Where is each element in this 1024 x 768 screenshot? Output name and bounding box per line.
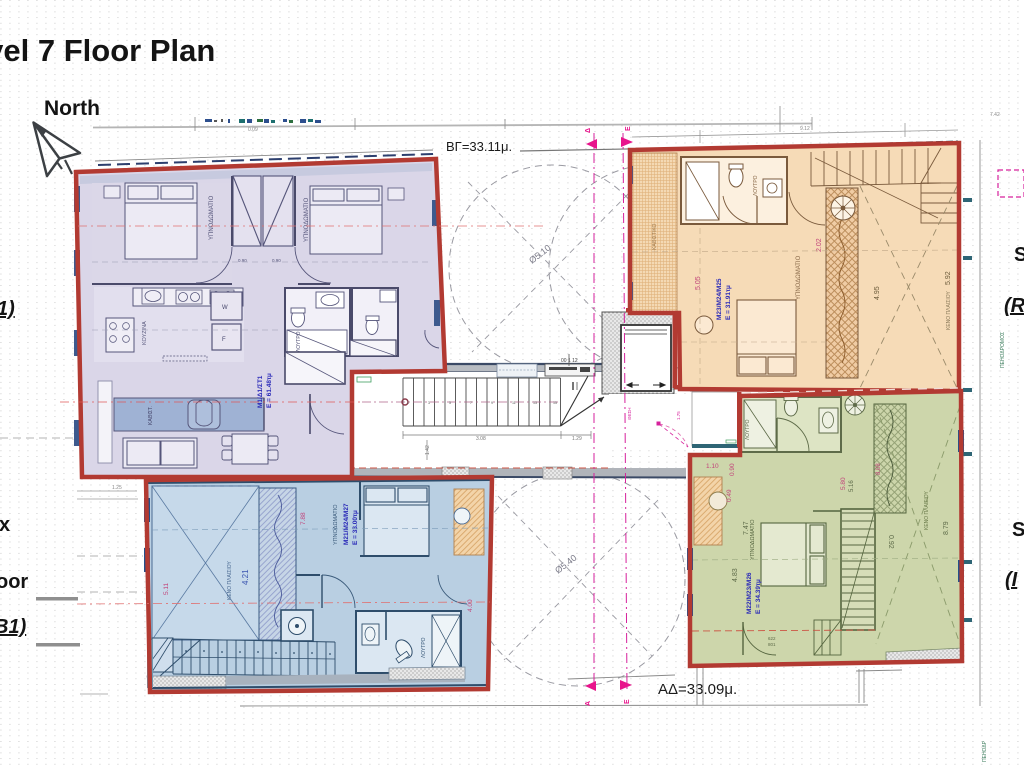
svg-text:8.79: 8.79: [943, 521, 950, 535]
svg-text:4.00: 4.00: [467, 599, 474, 612]
svg-text:ΥΠΝΟΔΩΜΑΤΙΟ: ΥΠΝΟΔΩΜΑΤΙΟ: [750, 519, 756, 560]
svg-text:S: S: [1014, 244, 1024, 266]
svg-text:ΚΕΝΟ ΠΛΑΙΣΙΟΥ: ΚΕΝΟ ΠΛΑΙΣΙΟΥ: [946, 291, 952, 330]
svg-text:W: W: [222, 305, 228, 311]
svg-text:ΚΕΝΟ ΠΛΑΙΣΙΟΥ: ΚΕΝΟ ΠΛΑΙΣΙΟΥ: [227, 561, 233, 600]
svg-text:Level 7 Floor Plan: Level 7 Floor Plan: [0, 33, 215, 68]
svg-text:5.11: 5.11: [163, 582, 170, 595]
svg-text:ΥΠΝΟΔΩΜΑΤΙΟ: ΥΠΝΟΔΩΜΑΤΙΟ: [796, 255, 802, 300]
svg-text:(I: (I: [1005, 569, 1018, 591]
svg-text:5.16: 5.16: [849, 480, 855, 492]
svg-text:8.08: 8.08: [876, 463, 882, 475]
svg-text:ΚΟΥΖΙΝΑ: ΚΟΥΖΙΝΑ: [142, 321, 148, 345]
svg-text:7.88: 7.88: [300, 512, 307, 525]
svg-text:Ε: Ε: [624, 699, 631, 704]
svg-text:1.29: 1.29: [572, 436, 582, 442]
svg-text:ΚΕΝΟ ΠΛΑΙΣΙΟΥ: ΚΕΝΟ ΠΛΑΙΣΙΟΥ: [924, 491, 930, 530]
svg-text:Δ: Δ: [585, 128, 592, 133]
svg-text:ΥΠΝΟΔΩΜΑΤΙΟ: ΥΠΝΟΔΩΜΑΤΙΟ: [333, 504, 339, 545]
svg-text:1: 1: [407, 401, 409, 405]
svg-text:9: 9: [491, 401, 493, 405]
svg-text:Μ1/Δ1/ΣΤ1: Μ1/Δ1/ΣΤ1: [257, 375, 264, 408]
svg-text:ΥΠΝΟΔΩΜΑΤΙΟ: ΥΠΝΟΔΩΜΑΤΙΟ: [209, 195, 215, 240]
svg-text:ΠΕΗΟΔΡ: ΠΕΗΟΔΡ: [982, 740, 988, 762]
svg-text:Μ23/Μ24/Μ25: Μ23/Μ24/Μ25: [716, 278, 723, 320]
svg-text:oor: oor: [0, 571, 28, 593]
svg-text:ΑΔ=33.09μ.: ΑΔ=33.09μ.: [658, 681, 737, 698]
svg-text:4.21: 4.21: [241, 569, 250, 585]
svg-text:Ε = 31.91τμ: Ε = 31.91τμ: [725, 285, 732, 320]
svg-text:ΚΑΘΙΣΤΙΚΟ: ΚΑΘΙΣΤΙΚΟ: [652, 223, 658, 250]
svg-text:7.47: 7.47: [743, 521, 750, 535]
svg-text:1.75: 1.75: [676, 411, 681, 420]
svg-text:5: 5: [449, 401, 451, 405]
svg-text:11: 11: [512, 401, 516, 405]
svg-text:7.42: 7.42: [990, 112, 1000, 118]
svg-text:Ε: Ε: [625, 126, 632, 131]
svg-text:ΘΕΣΗ: ΘΕΣΗ: [627, 407, 632, 420]
svg-text:3: 3: [428, 401, 430, 405]
svg-text:0.49: 0.49: [726, 489, 733, 502]
svg-text:1.25: 1.25: [112, 485, 122, 491]
svg-text:5.05: 5.05: [695, 276, 702, 290]
svg-text:x: x: [0, 514, 10, 536]
svg-text:ΒΓ=33.11μ.: ΒΓ=33.11μ.: [446, 139, 512, 154]
svg-text:Μ22/Μ23/Μ26: Μ22/Μ23/Μ26: [746, 572, 753, 614]
svg-text:Α: Α: [585, 701, 592, 706]
svg-text:ΛΟΥΤΡΟ: ΛΟΥΤΡΟ: [296, 331, 302, 352]
svg-text:ΛΟΥΤΡΟ: ΛΟΥΤΡΟ: [421, 637, 427, 658]
svg-text:4.95: 4.95: [874, 286, 881, 300]
svg-text:9.12: 9.12: [800, 126, 810, 132]
svg-text:3.08: 3.08: [476, 436, 486, 442]
svg-text:B1): B1): [0, 616, 27, 638]
svg-text:13: 13: [533, 401, 537, 405]
svg-text:1.42: 1.42: [425, 445, 431, 455]
svg-text:2.02: 2.02: [816, 238, 823, 252]
svg-text:0.92: 0.92: [887, 535, 894, 549]
svg-text:ΛΟΥΤΡΟ: ΛΟΥΤΡΟ: [753, 175, 759, 196]
svg-text:5.92: 5.92: [945, 271, 952, 285]
svg-text:622: 622: [768, 636, 776, 641]
svg-text:7: 7: [470, 401, 472, 405]
svg-text:ΚΑΘΙΣΤ.: ΚΑΘΙΣΤ.: [148, 406, 154, 425]
svg-text:1): 1): [0, 298, 15, 320]
svg-text:ΠΕΗΟΔΡΟΜΟΣ: ΠΕΗΟΔΡΟΜΟΣ: [1000, 332, 1006, 368]
svg-text:Ε = 33.00τμ: Ε = 33.00τμ: [352, 510, 359, 545]
svg-text:ΛΟΥΤΡΟ: ΛΟΥΤΡΟ: [745, 419, 751, 440]
svg-text:(R: (R: [1004, 295, 1024, 317]
svg-text:15: 15: [553, 401, 557, 405]
svg-text:F: F: [222, 337, 226, 343]
svg-text:Ε = 34.39τμ: Ε = 34.39τμ: [755, 579, 762, 614]
svg-text:S: S: [1012, 519, 1024, 541]
svg-text:1.10: 1.10: [706, 463, 719, 470]
svg-text:801: 801: [768, 642, 776, 647]
svg-text:4.83: 4.83: [732, 568, 739, 582]
svg-text:5.80: 5.80: [840, 477, 847, 490]
svg-text:00 1 12: 00 1 12: [561, 358, 578, 364]
svg-text:ΥΠΝΟΔΩΜΑΤΙΟ: ΥΠΝΟΔΩΜΑΤΙΟ: [304, 197, 310, 242]
svg-text:0.09: 0.09: [248, 127, 258, 133]
svg-text:Ε = 61.48τμ: Ε = 61.48τμ: [266, 373, 273, 408]
svg-text:Μ21/Μ24/Μ27: Μ21/Μ24/Μ27: [343, 503, 350, 545]
svg-text:North: North: [44, 97, 100, 120]
svg-text:0.90: 0.90: [729, 463, 736, 476]
